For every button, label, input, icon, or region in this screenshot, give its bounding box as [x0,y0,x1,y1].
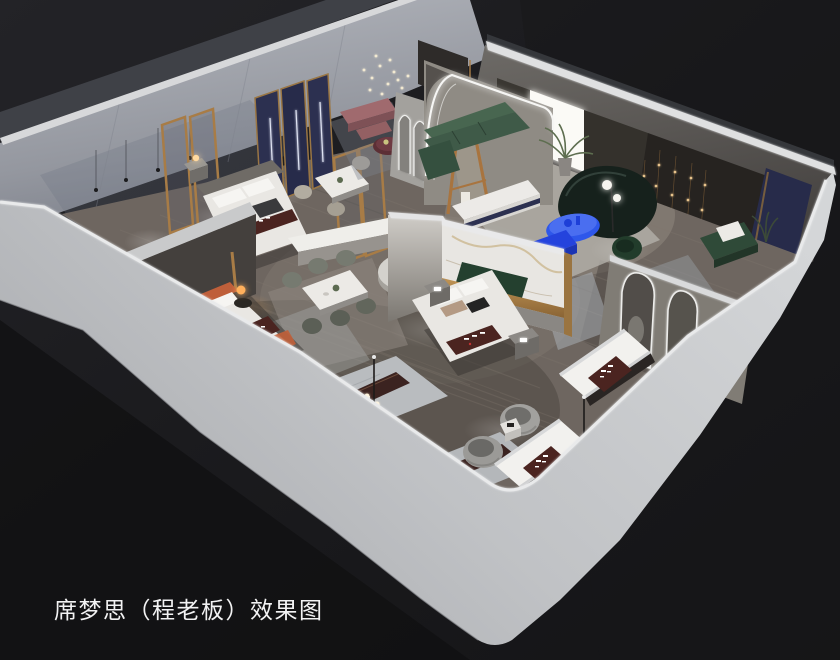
caption-title: 席梦思（程老板）效果图 [54,591,324,625]
glowing-sphere-lamp [237,286,246,295]
green-velvet-chair [612,236,642,260]
bedside-lamp [193,155,199,161]
rendering-canvas: 席梦思（程老板）效果图 [0,0,840,660]
showroom-3d-rendering [0,0,840,660]
